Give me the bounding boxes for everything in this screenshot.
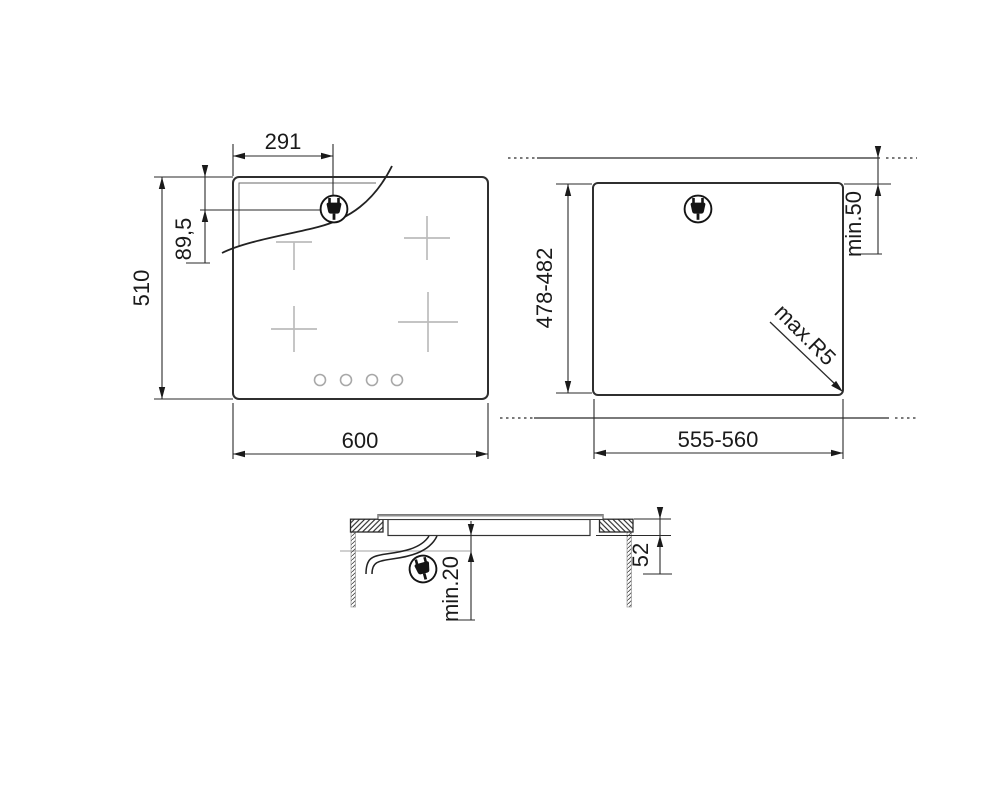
arrowhead xyxy=(657,507,663,519)
arrowhead xyxy=(233,451,245,457)
power-plug-icon xyxy=(407,553,440,586)
arrowhead xyxy=(202,210,208,222)
dim-label-555-560: 555-560 xyxy=(678,427,759,452)
arrowhead xyxy=(565,381,571,393)
arrowhead xyxy=(202,165,208,177)
cabinet-panel-left xyxy=(351,532,356,607)
cutout-outline xyxy=(593,183,843,395)
dim-label-291: 291 xyxy=(265,129,302,154)
arrowhead xyxy=(159,387,165,399)
knob xyxy=(341,375,352,386)
power-plug-icon xyxy=(685,196,712,223)
arrowhead xyxy=(594,450,606,456)
dim-cutout-depth: 478-482 xyxy=(532,184,592,393)
arrowhead xyxy=(468,551,474,562)
dim-label-min50: min.50 xyxy=(841,191,866,257)
dim-hob-width: 600 xyxy=(233,403,488,459)
arrowhead xyxy=(565,184,571,196)
extension-lines xyxy=(556,184,592,393)
dim-label-478-482: 478-482 xyxy=(532,248,557,329)
arrowhead xyxy=(831,450,843,456)
arrowhead xyxy=(159,177,165,189)
installation-diagram-page: 291 89,5 510 600 xyxy=(0,0,1000,800)
arrowhead xyxy=(321,153,333,159)
dim-label-89-5: 89,5 xyxy=(171,218,196,261)
dim-clearance-below: min.20 xyxy=(438,521,475,622)
knob xyxy=(392,375,403,386)
arrowhead xyxy=(233,153,245,159)
dim-rear-clearance: min.50 xyxy=(841,146,891,257)
arrowhead xyxy=(875,184,881,196)
dim-label-min20: min.20 xyxy=(438,556,463,622)
power-plug-icon xyxy=(321,196,348,223)
worktop-section-right xyxy=(600,519,634,532)
installation-side-view: min.20 52 xyxy=(340,507,672,622)
dim-cutout-width: 555-560 xyxy=(594,399,843,459)
worktop-cutout-view: 478-482 min.50 max.R5 555-560 xyxy=(500,146,917,459)
cabinet-side-panels xyxy=(351,532,632,607)
dim-label-510: 510 xyxy=(129,270,154,307)
worktop-section-left xyxy=(351,519,384,532)
installation-diagram: 291 89,5 510 600 xyxy=(0,0,1000,800)
knob xyxy=(315,375,326,386)
dim-label-600: 600 xyxy=(342,428,379,453)
hob-body-section xyxy=(388,520,590,536)
arrowhead xyxy=(875,146,881,158)
arrowhead xyxy=(476,451,488,457)
knob xyxy=(367,375,378,386)
arrowhead xyxy=(657,536,663,548)
dim-built-in-depth: 52 xyxy=(596,507,672,574)
dim-label-52: 52 xyxy=(628,543,653,567)
hob-top-view: 291 89,5 510 600 xyxy=(129,129,488,459)
